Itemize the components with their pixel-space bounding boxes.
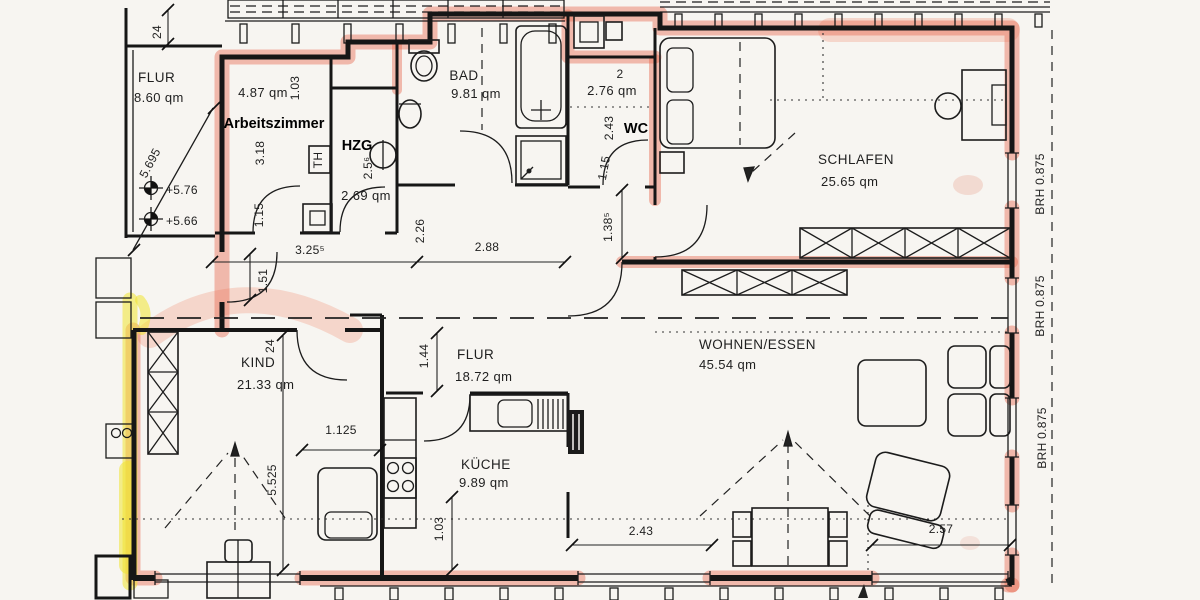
dim: 2.57 [929,522,954,536]
dim: 1.38⁵ [601,212,615,242]
dining-chair-icon [733,541,751,566]
dim: 24 [150,25,164,39]
nightstand-icon [660,152,684,173]
room-name-annotation: WC [624,121,649,137]
railing-posts [335,588,1003,600]
room-area: 4.87 qm [238,85,288,100]
dim: 2.26 [413,219,427,244]
dim: 1.15 [595,155,613,182]
dim: 2.43 [629,524,654,538]
wardrobe-icon [800,228,1010,258]
room-area: 18.72 qm [455,369,512,384]
room-area: 8.60 qm [134,90,184,105]
floor-plan: TH [0,0,1200,600]
dining-table-icon [752,508,828,566]
bad-door-swing [460,131,512,183]
dim: 2.5⁶ [361,157,375,180]
dim: 5.525 [265,464,279,496]
kueche-door-swing [424,395,470,441]
room-name-annotation: HZG [342,138,373,154]
floor-plan-scan: TH [0,0,1200,600]
room-name: FLUR [457,347,494,362]
stool-icon [935,93,961,119]
room-area: 25.65 qm [821,174,878,189]
kitchen-sink-icon [470,395,568,431]
kid-desk-icon [207,562,270,598]
dining-chair-icon [733,512,751,537]
elevation-label: +5.66 [166,214,198,228]
room-area: 45.54 qm [699,357,756,372]
room-area: 21.33 qm [237,377,294,392]
windows [155,153,1019,585]
dim: 2.43 [602,116,616,141]
dim: 3.18 [253,141,267,166]
dim: 2.88 [475,240,500,254]
lounge-chair-icon [948,394,986,436]
bathtub-icon [516,26,566,128]
dining-chair-icon [829,512,847,537]
wohnen-door-swing [568,262,622,316]
dim-fragment: 2 [617,67,624,81]
room-name: KÜCHE [461,457,511,472]
dim: 1.03 [432,517,446,542]
side-table-icon [858,360,926,426]
dim: 1.15 [252,203,266,228]
dimension-labels: 24 5.695 +5.76 +5.66 1.03 3.18 1.15 2.5⁶… [136,25,1049,541]
dim: 5.695 [136,146,163,180]
dim: 24 [263,339,277,353]
kid-bed-icon [318,468,377,540]
wohnen-furniture [700,346,1010,568]
kid-chair-icon [225,540,252,562]
cupboard-icon [303,204,332,232]
schlafen-door-swing [655,205,707,257]
stove-icon [384,458,416,498]
stairwell-walls [126,8,222,238]
room-name: SCHLAFEN [818,152,894,167]
lounge-chair-icon [948,346,986,388]
dining-chair-icon [829,541,847,566]
dim: 1.125 [325,423,357,437]
elevation-label: +5.76 [166,183,198,197]
desk-icon [962,70,1006,140]
room-area: 9.81 qm [451,86,501,101]
lower-balcony-railing [320,584,1012,600]
sill-height-label: BRH 0.875 [1033,153,1047,214]
room-area: 9.89 qm [459,475,509,490]
dim: 1.44 [417,344,431,369]
shower-icon [516,136,566,184]
schlafen-furniture [660,38,1010,258]
room-name: KIND [241,355,275,370]
dim: 1.03 [288,76,302,101]
room-name: BAD [449,68,478,83]
flur-wardrobe-icon [682,270,847,295]
wardrobe-icon [148,332,178,454]
scan-smudge [960,536,980,550]
door-swings [227,131,707,441]
elevation-marker [139,176,163,200]
th-box: TH [309,146,330,173]
chimney-shaft [568,410,584,454]
scan-smudge [953,175,983,195]
elevation-marker [139,207,163,231]
dim: 1.51 [256,269,270,294]
sill-height-label: BRH 0.875 [1033,275,1047,336]
kind-furniture [148,332,377,598]
room-name-annotation: Arbeitszimmer [224,116,325,132]
slope-arrow [744,133,795,181]
th-label: TH [311,152,325,169]
double-bed-icon [660,38,775,148]
room-area: 2.76 qm [587,83,637,98]
room-area: 2.69 qm [341,188,391,203]
dryer-icon [606,22,622,40]
room-name: FLUR [138,70,175,85]
dim: 3.25⁵ [295,243,325,257]
room-name: WOHNEN/ESSEN [699,337,816,352]
washbasin-icon [399,100,421,128]
slope-arrow [700,432,870,568]
sill-height-label: BRH 0.875 [1035,407,1049,468]
